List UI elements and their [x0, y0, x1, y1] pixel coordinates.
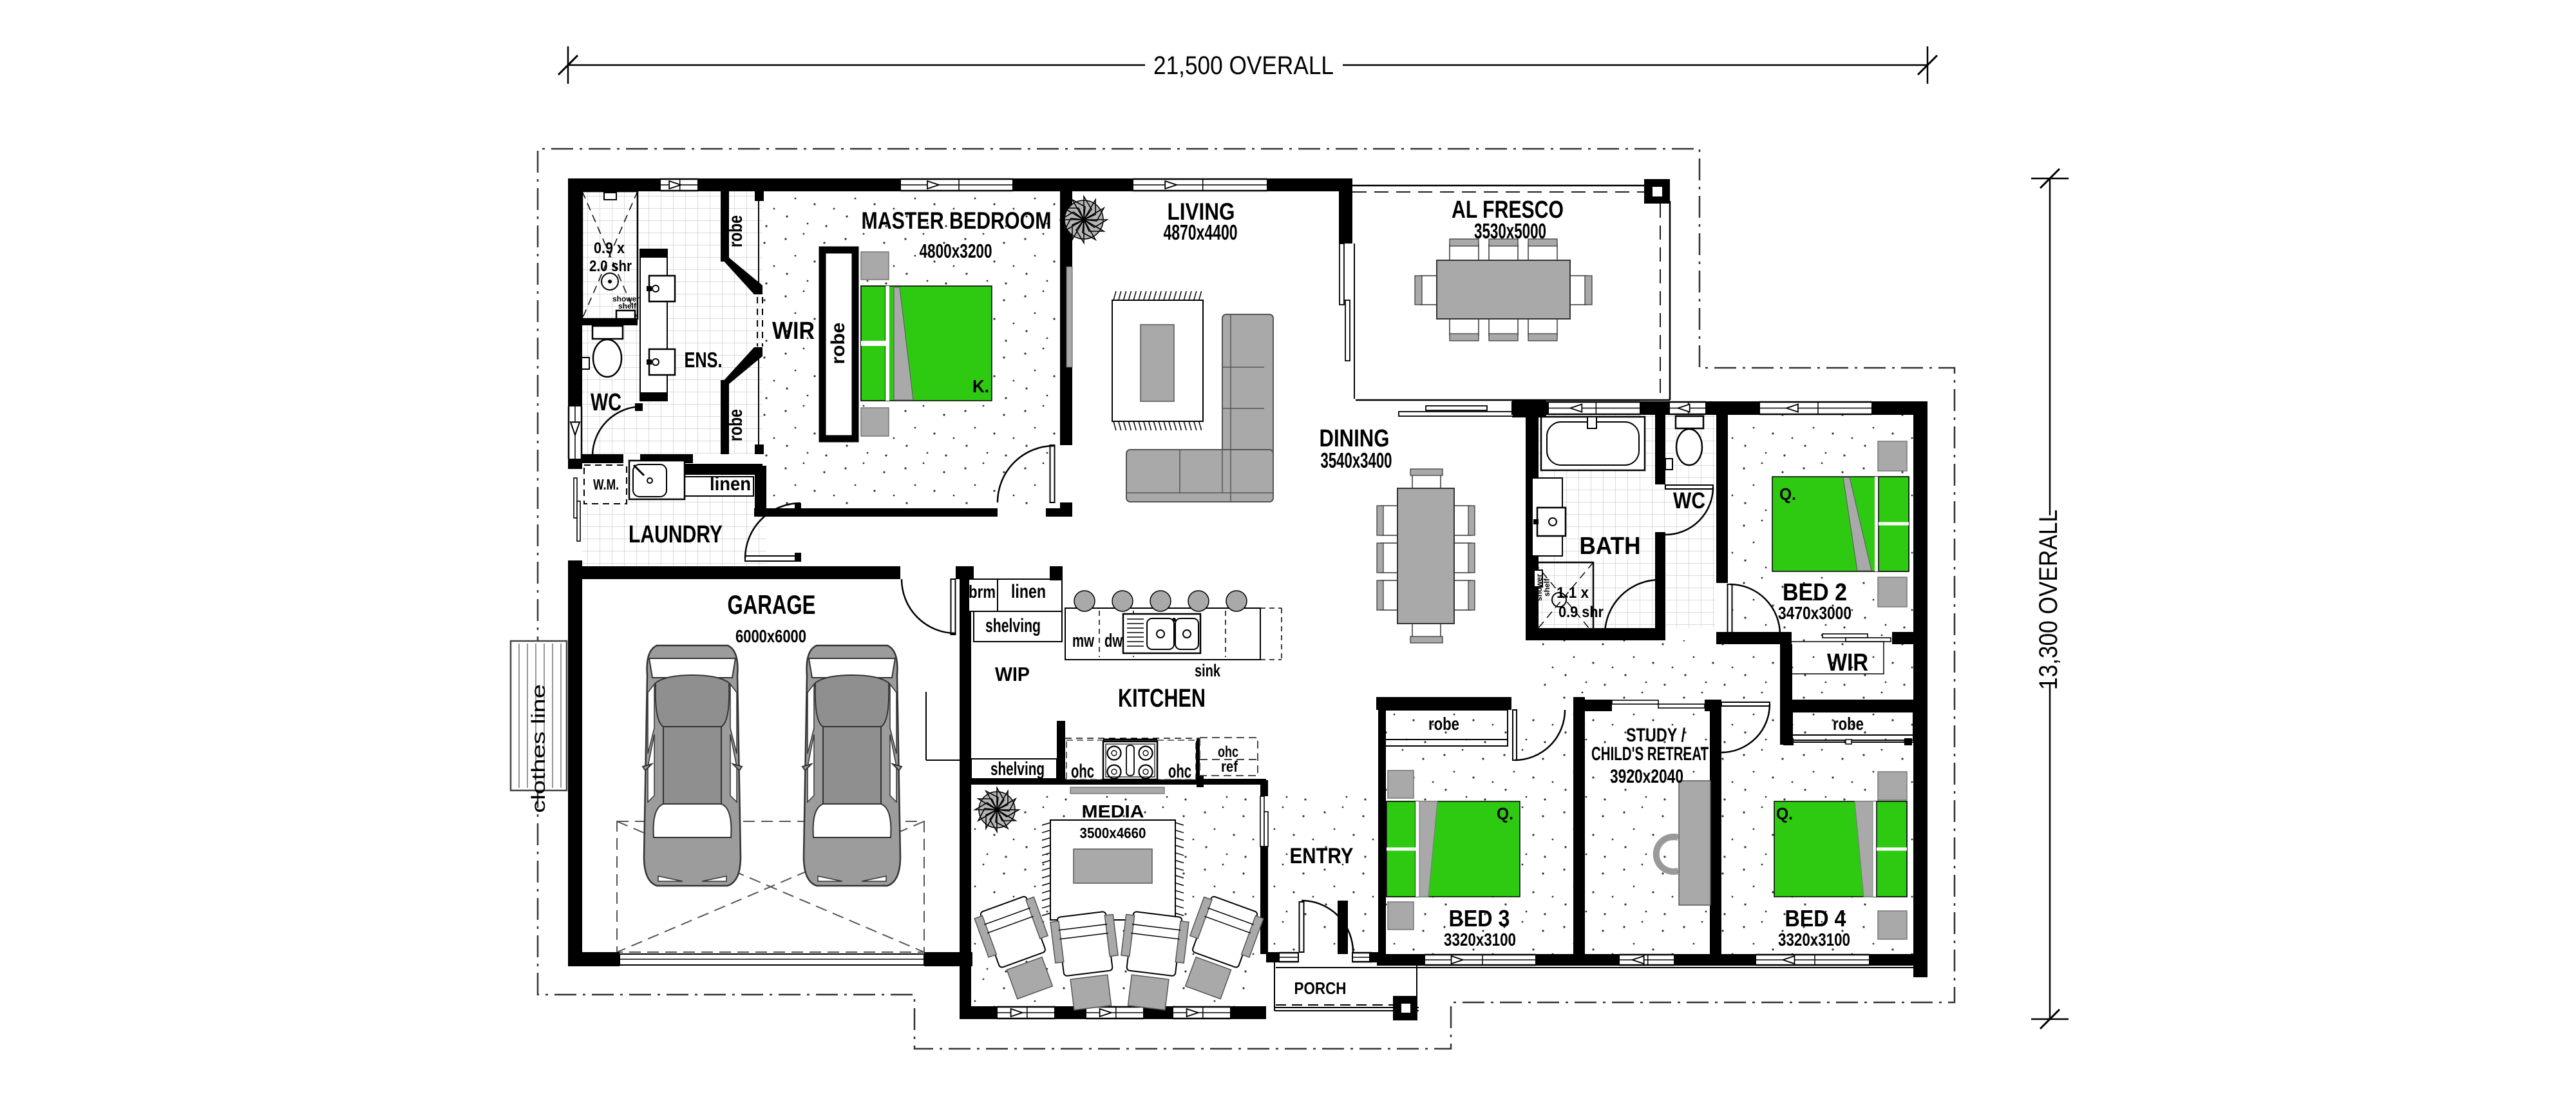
- svg-text:3320x3100: 3320x3100: [1778, 930, 1850, 950]
- svg-text:Q.: Q.: [1779, 484, 1796, 504]
- svg-text:3540x3400: 3540x3400: [1321, 448, 1392, 472]
- svg-text:CHILD'S RETREAT: CHILD'S RETREAT: [1591, 743, 1709, 765]
- svg-text:3320x3100: 3320x3100: [1444, 930, 1516, 950]
- svg-text:sink: sink: [1195, 661, 1221, 680]
- svg-text:3470x3000: 3470x3000: [1778, 603, 1851, 623]
- svg-text:Q.: Q.: [1776, 804, 1793, 823]
- svg-text:0.9 shr: 0.9 shr: [1558, 604, 1604, 621]
- svg-text:WIP: WIP: [995, 663, 1030, 685]
- svg-text:PORCH: PORCH: [1294, 979, 1347, 998]
- svg-text:1.1 x: 1.1 x: [1557, 584, 1589, 602]
- svg-text:ohc: ohc: [1168, 761, 1191, 782]
- svg-text:LAUNDRY: LAUNDRY: [629, 521, 723, 548]
- svg-text:robe: robe: [725, 409, 746, 441]
- svg-text:6000x6000: 6000x6000: [735, 626, 806, 646]
- svg-text:4800x3200: 4800x3200: [920, 240, 992, 262]
- svg-text:robe: robe: [725, 215, 746, 247]
- svg-text:mw: mw: [1072, 631, 1094, 651]
- svg-text:4870x4400: 4870x4400: [1164, 220, 1238, 244]
- svg-text:BED 2: BED 2: [1783, 579, 1847, 606]
- svg-text:K.: K.: [972, 376, 989, 396]
- svg-text:2.0 shr: 2.0 shr: [589, 258, 632, 275]
- svg-text:dw: dw: [1104, 631, 1122, 651]
- svg-text:brm: brm: [969, 582, 996, 602]
- svg-text:3920x2040: 3920x2040: [1610, 766, 1683, 787]
- svg-text:WIR: WIR: [1827, 649, 1868, 676]
- svg-text:0.9 x: 0.9 x: [594, 240, 625, 257]
- svg-text:13,300 OVERALL: 13,300 OVERALL: [2034, 510, 2063, 690]
- svg-text:ohc: ohc: [1071, 761, 1094, 782]
- svg-text:shelf: shelf: [1542, 578, 1551, 597]
- svg-text:robe: robe: [1428, 714, 1459, 734]
- svg-text:MASTER BEDROOM: MASTER BEDROOM: [862, 207, 1052, 234]
- svg-text:BED 4: BED 4: [1785, 905, 1846, 932]
- svg-text:3500x4660: 3500x4660: [1080, 825, 1146, 841]
- svg-text:linen: linen: [710, 473, 751, 495]
- svg-text:WC: WC: [1673, 488, 1705, 513]
- svg-text:ref: ref: [1221, 758, 1238, 776]
- svg-text:shelf: shelf: [618, 301, 637, 311]
- svg-text:linen: linen: [1011, 581, 1046, 602]
- svg-text:shelving: shelving: [985, 615, 1041, 636]
- svg-text:BED 3: BED 3: [1449, 905, 1510, 932]
- svg-text:3530x5000: 3530x5000: [1474, 219, 1546, 243]
- svg-text:robe: robe: [1833, 714, 1864, 734]
- svg-text:clothes line: clothes line: [528, 684, 549, 813]
- svg-text:GARAGE: GARAGE: [728, 589, 816, 620]
- svg-text:MEDIA: MEDIA: [1082, 801, 1144, 821]
- svg-text:KITCHEN: KITCHEN: [1118, 684, 1206, 712]
- svg-text:WC: WC: [591, 389, 621, 416]
- svg-text:21,500 OVERALL: 21,500 OVERALL: [1153, 52, 1334, 80]
- svg-text:robe: robe: [828, 322, 849, 364]
- svg-text:ENTRY: ENTRY: [1290, 844, 1354, 868]
- svg-text:ENS.: ENS.: [685, 348, 723, 372]
- svg-text:WIR: WIR: [772, 318, 815, 345]
- svg-text:W.M.: W.M.: [593, 476, 619, 493]
- svg-text:Q.: Q.: [1497, 804, 1513, 823]
- svg-text:shelving: shelving: [990, 759, 1045, 779]
- svg-text:BATH: BATH: [1580, 533, 1641, 560]
